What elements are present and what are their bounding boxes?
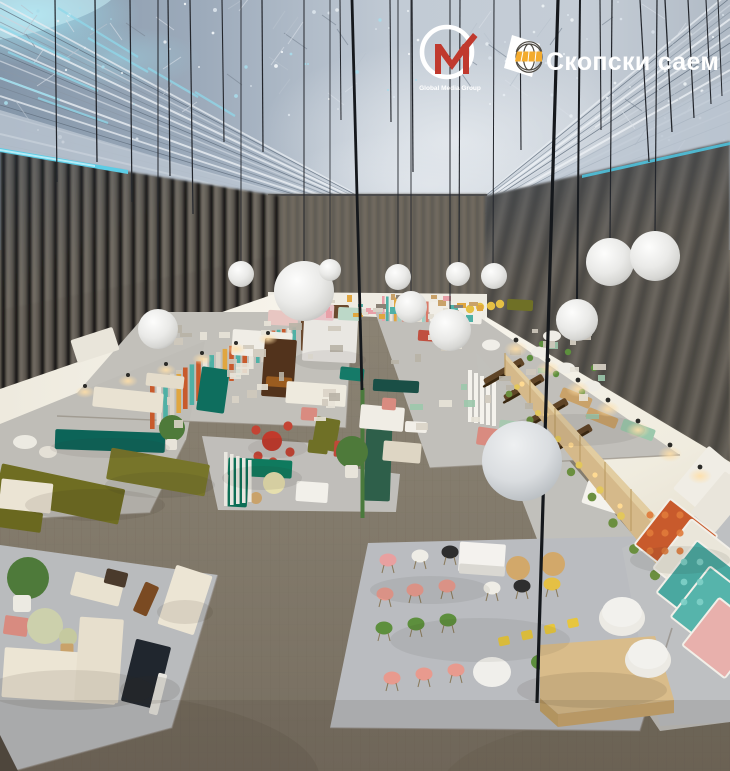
svg-text:Global Media Group: Global Media Group	[419, 85, 481, 92]
svg-text:Скопски саем: Скопски саем	[546, 48, 719, 76]
